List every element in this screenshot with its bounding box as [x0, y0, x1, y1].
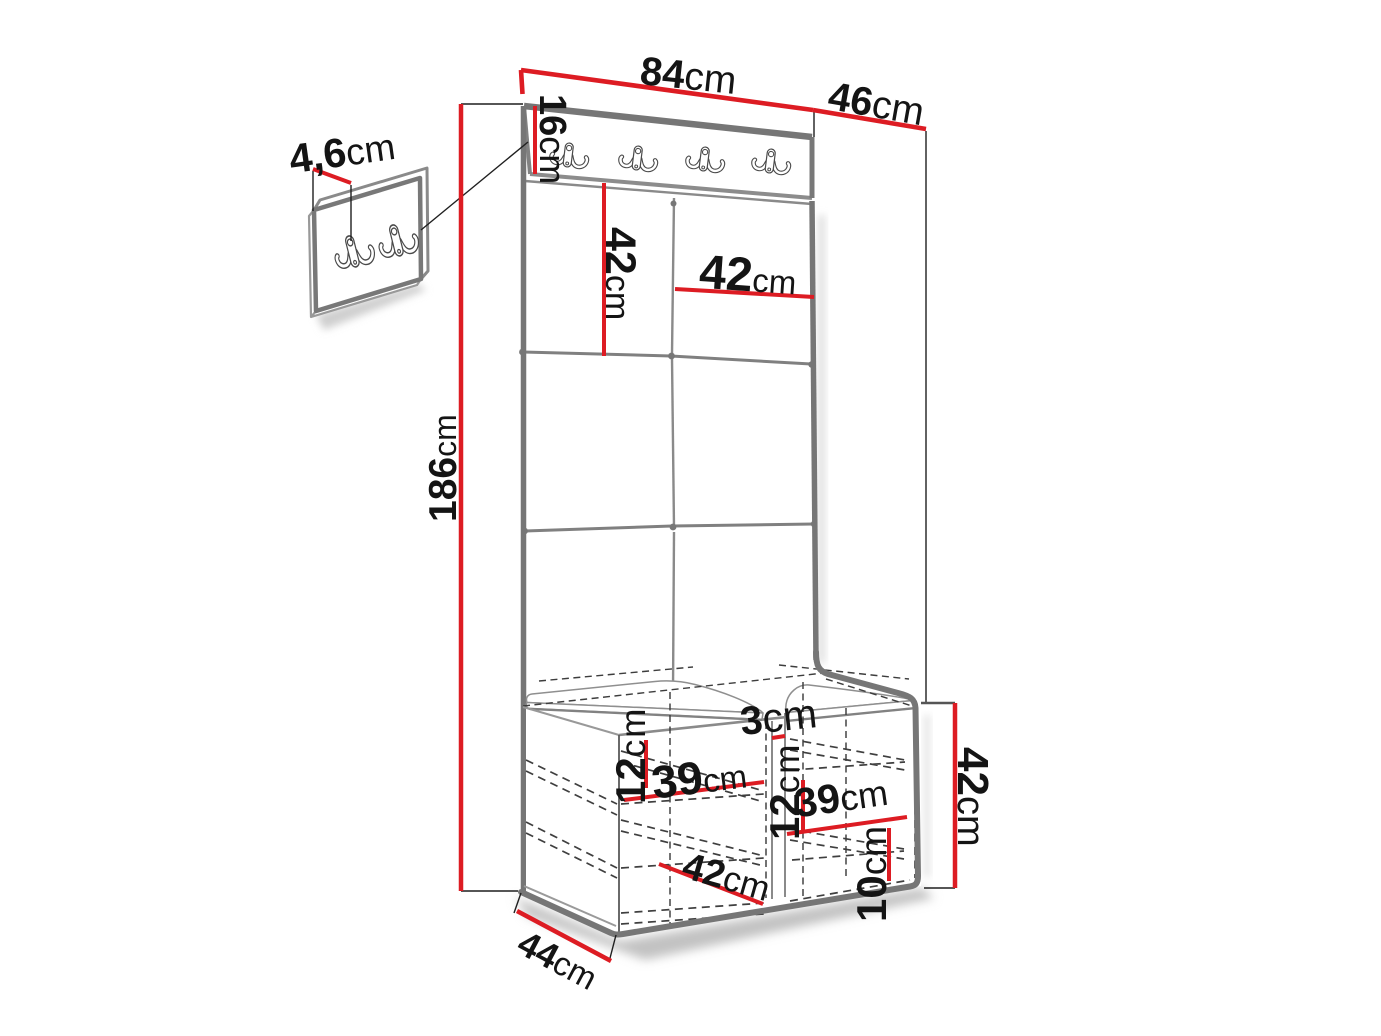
svg-text:16cm: 16cm: [531, 94, 573, 184]
svg-text:186cm: 186cm: [422, 414, 465, 522]
svg-text:3cm: 3cm: [738, 690, 819, 744]
svg-text:10cm: 10cm: [848, 826, 895, 922]
svg-text:12cm: 12cm: [607, 707, 654, 804]
svg-text:42cm: 42cm: [596, 227, 644, 320]
svg-text:42cm: 42cm: [948, 747, 997, 847]
